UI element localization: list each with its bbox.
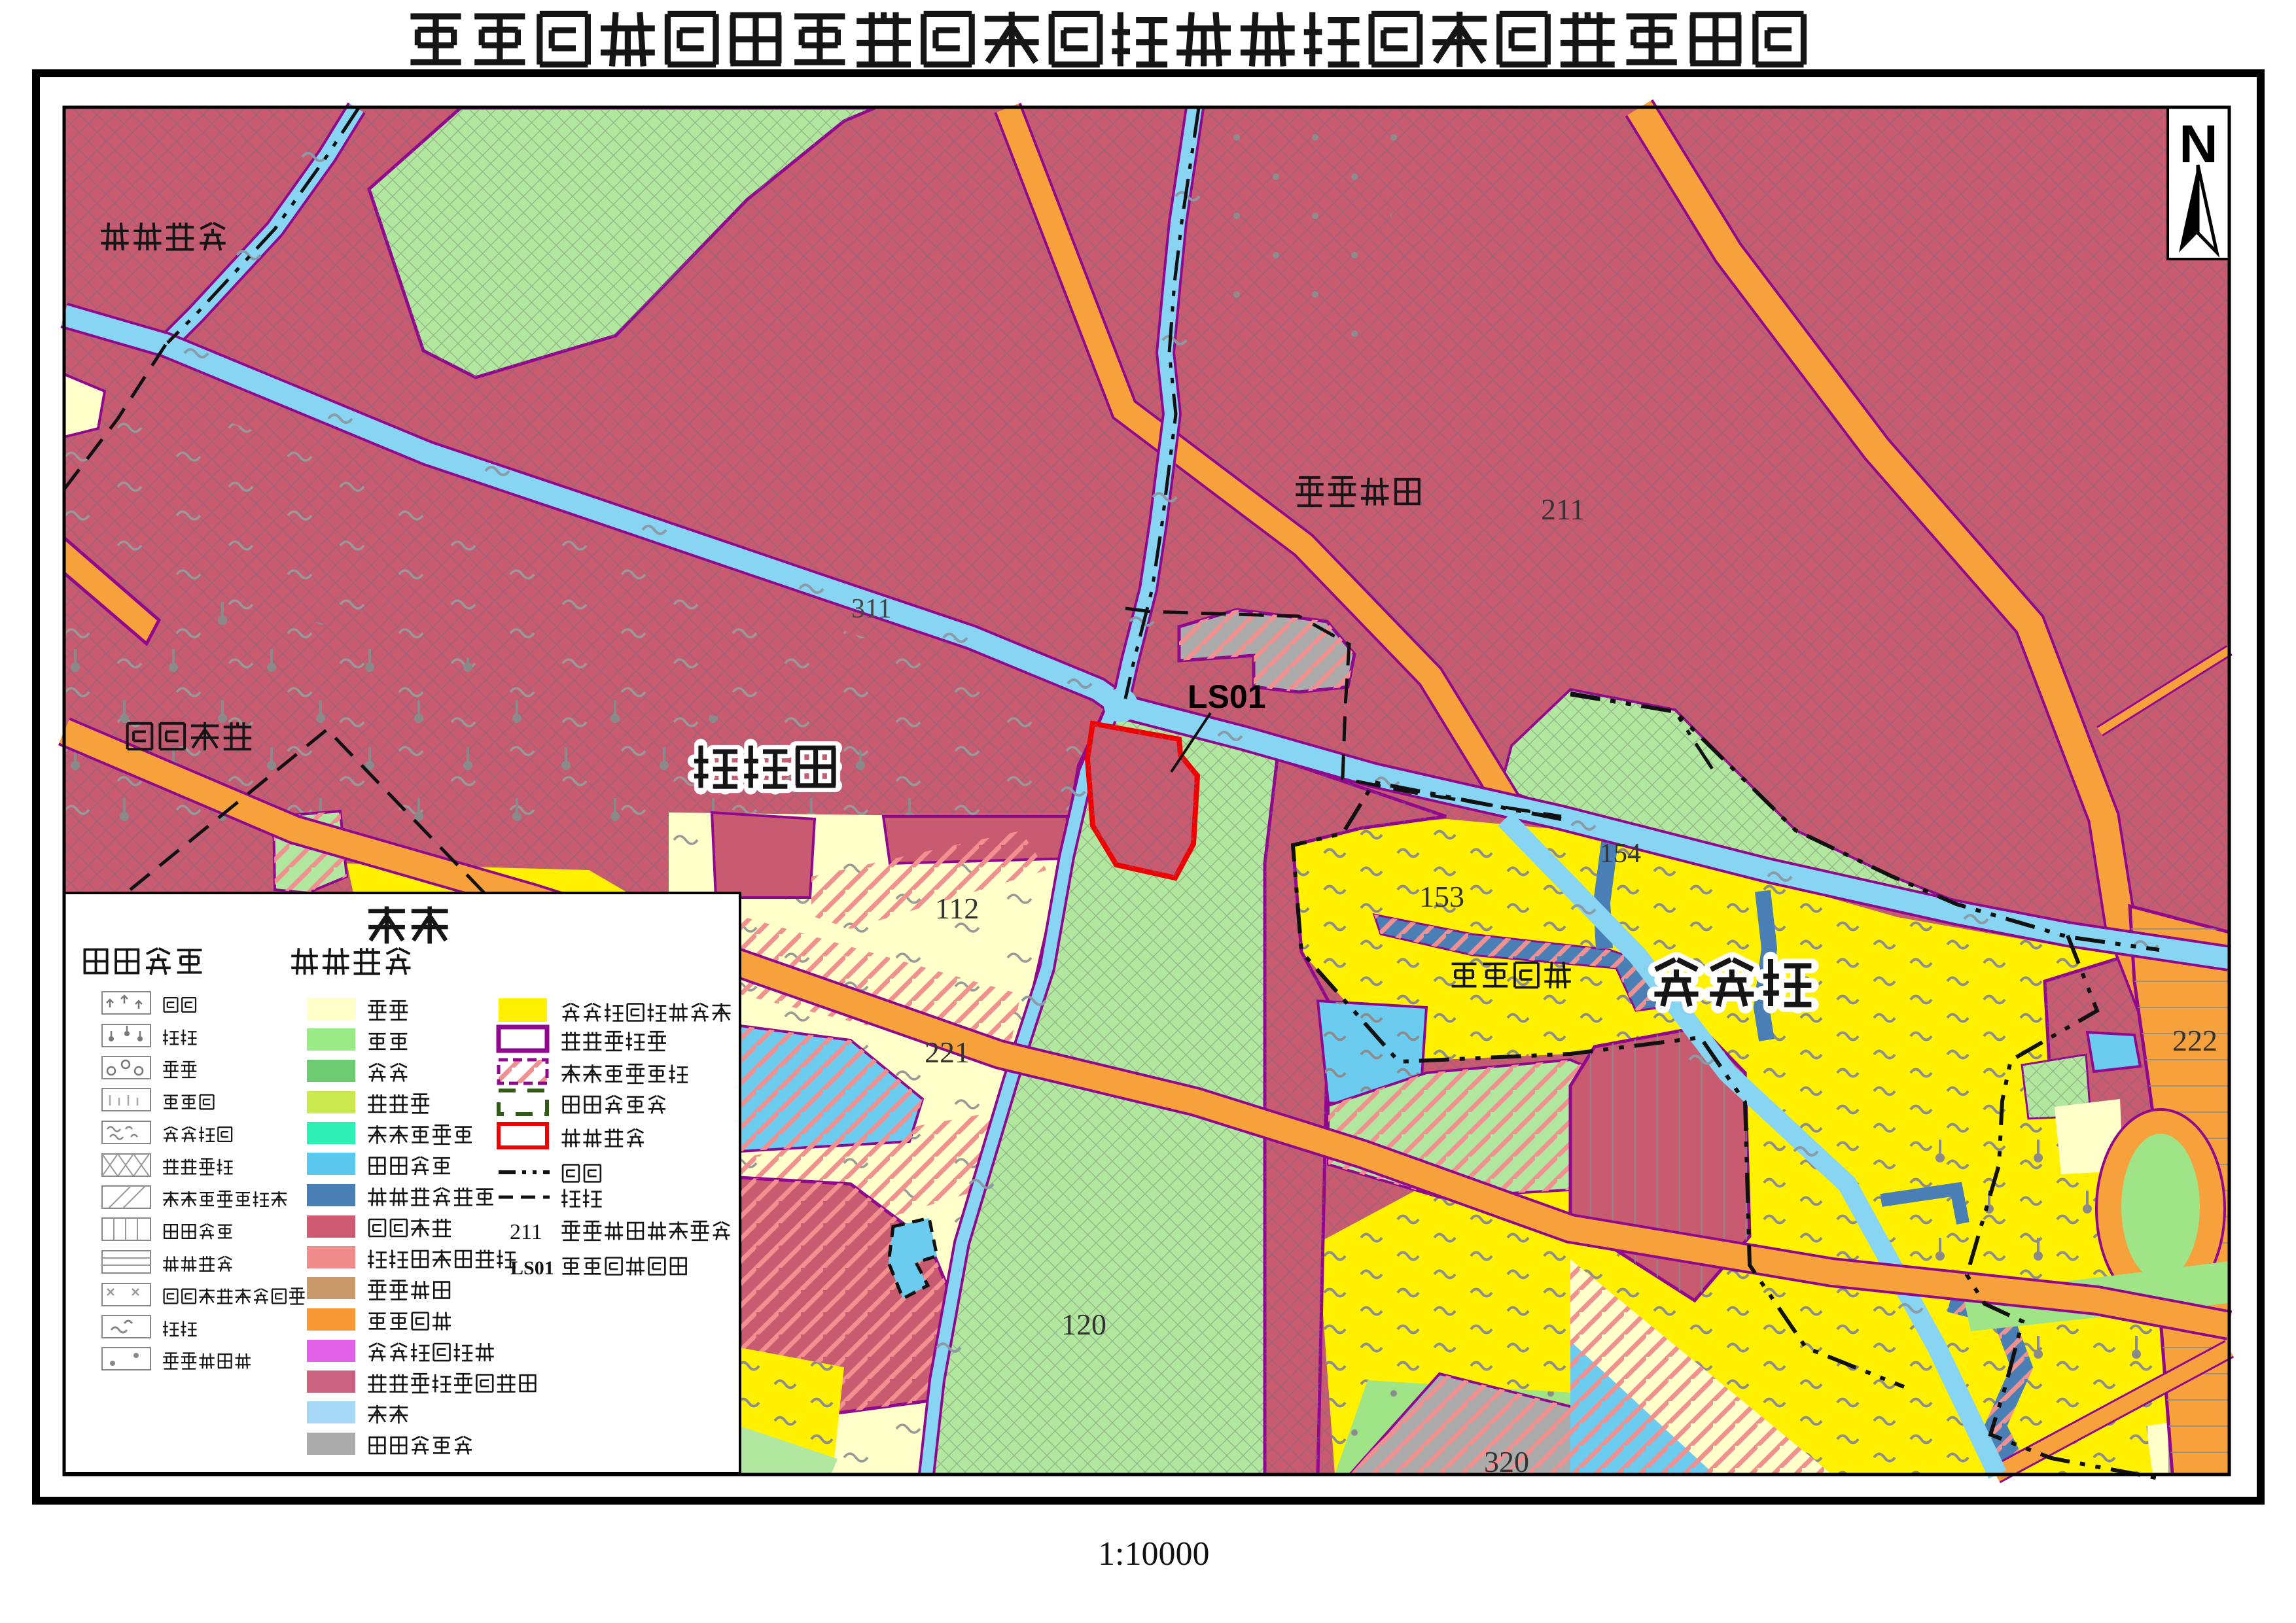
svg-text:1:10000: 1:10000 bbox=[1098, 1535, 1209, 1573]
svg-text:120: 120 bbox=[1061, 1308, 1106, 1341]
svg-text:LS01: LS01 bbox=[510, 1257, 554, 1279]
svg-text:153: 153 bbox=[1419, 880, 1464, 913]
svg-text:221: 221 bbox=[925, 1036, 970, 1069]
svg-text:311: 311 bbox=[851, 594, 891, 624]
svg-text:112: 112 bbox=[935, 892, 979, 925]
svg-text:154: 154 bbox=[1600, 839, 1641, 869]
svg-text:211: 211 bbox=[1541, 493, 1585, 526]
svg-text:211: 211 bbox=[510, 1220, 542, 1244]
svg-text:222: 222 bbox=[2172, 1024, 2217, 1057]
svg-text:LS01: LS01 bbox=[1188, 678, 1266, 715]
